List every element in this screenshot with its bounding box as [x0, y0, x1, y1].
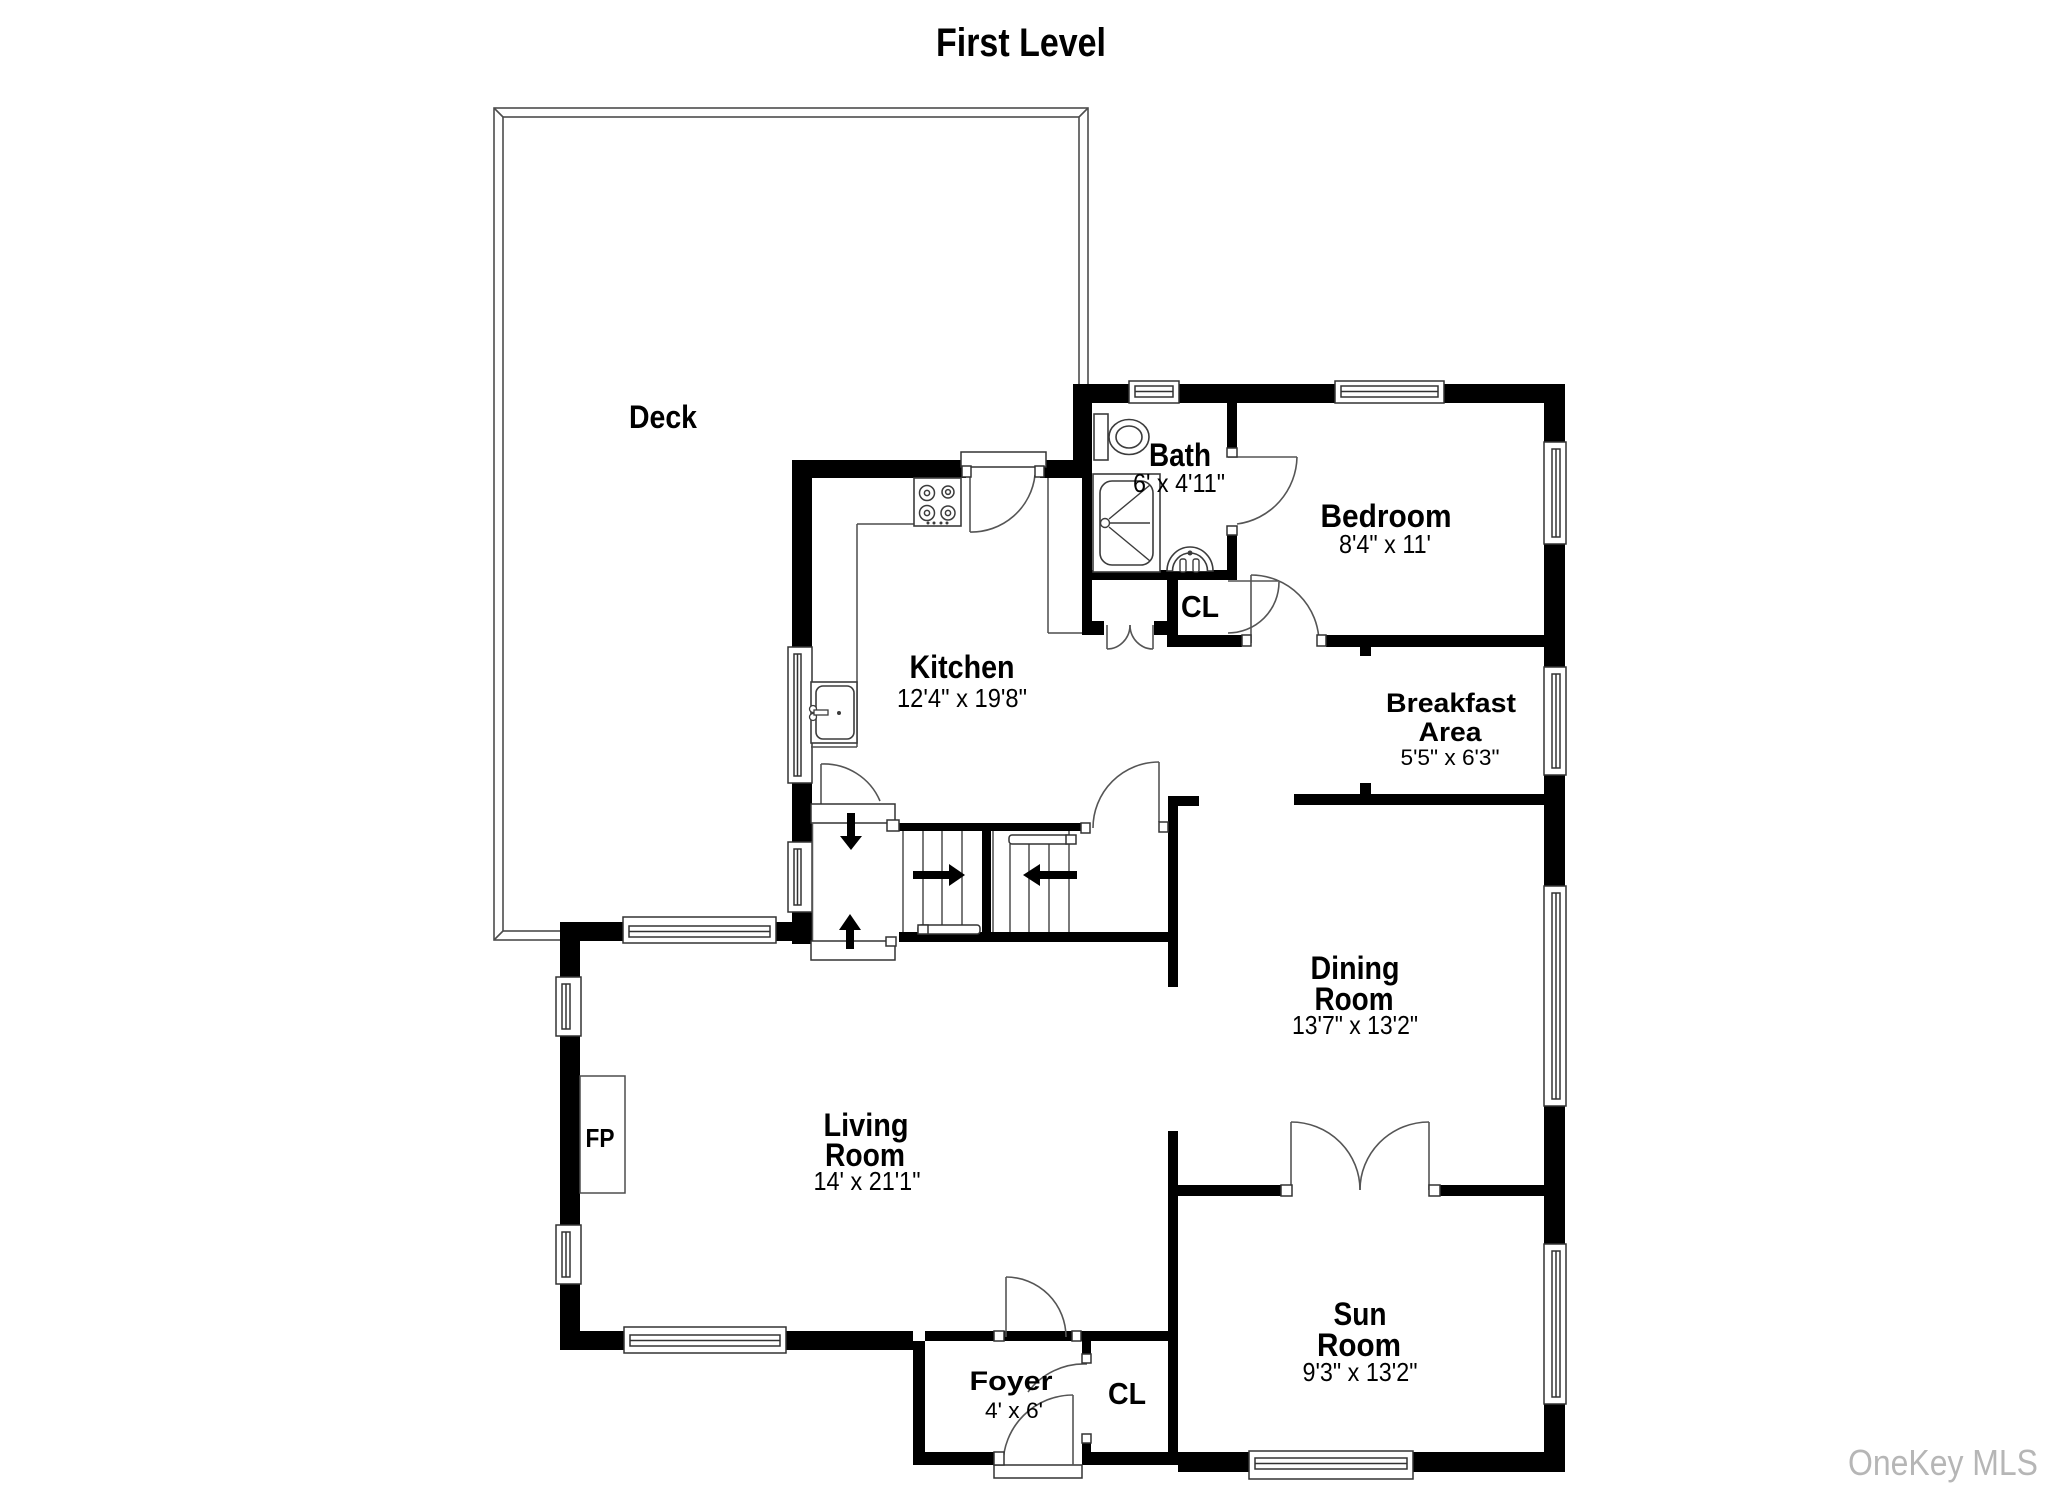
svg-text:13'7" x 13'2": 13'7" x 13'2" — [1292, 1010, 1418, 1040]
svg-text:First Level: First Level — [936, 21, 1106, 65]
svg-text:6' x 4'11": 6' x 4'11" — [1133, 468, 1225, 498]
svg-text:8'4" x 11': 8'4" x 11' — [1339, 529, 1431, 559]
svg-text:CL: CL — [1108, 1376, 1146, 1411]
svg-text:Area: Area — [1419, 717, 1483, 747]
svg-text:Deck: Deck — [629, 399, 697, 435]
svg-text:CL: CL — [1181, 589, 1219, 624]
svg-text:5'5" x 6'3": 5'5" x 6'3" — [1401, 745, 1500, 770]
svg-text:Foyer: Foyer — [970, 1366, 1054, 1396]
svg-text:9'3" x 13'2": 9'3" x 13'2" — [1303, 1357, 1418, 1387]
svg-text:FP: FP — [586, 1123, 615, 1153]
svg-text:4' x 6': 4' x 6' — [985, 1398, 1043, 1423]
svg-text:12'4" x 19'8": 12'4" x 19'8" — [897, 683, 1027, 713]
svg-text:OneKey MLS: OneKey MLS — [1848, 1442, 2038, 1483]
svg-text:Kitchen: Kitchen — [910, 649, 1015, 685]
svg-text:14' x 21'1": 14' x 21'1" — [814, 1166, 921, 1196]
svg-text:Breakfast: Breakfast — [1386, 688, 1516, 718]
